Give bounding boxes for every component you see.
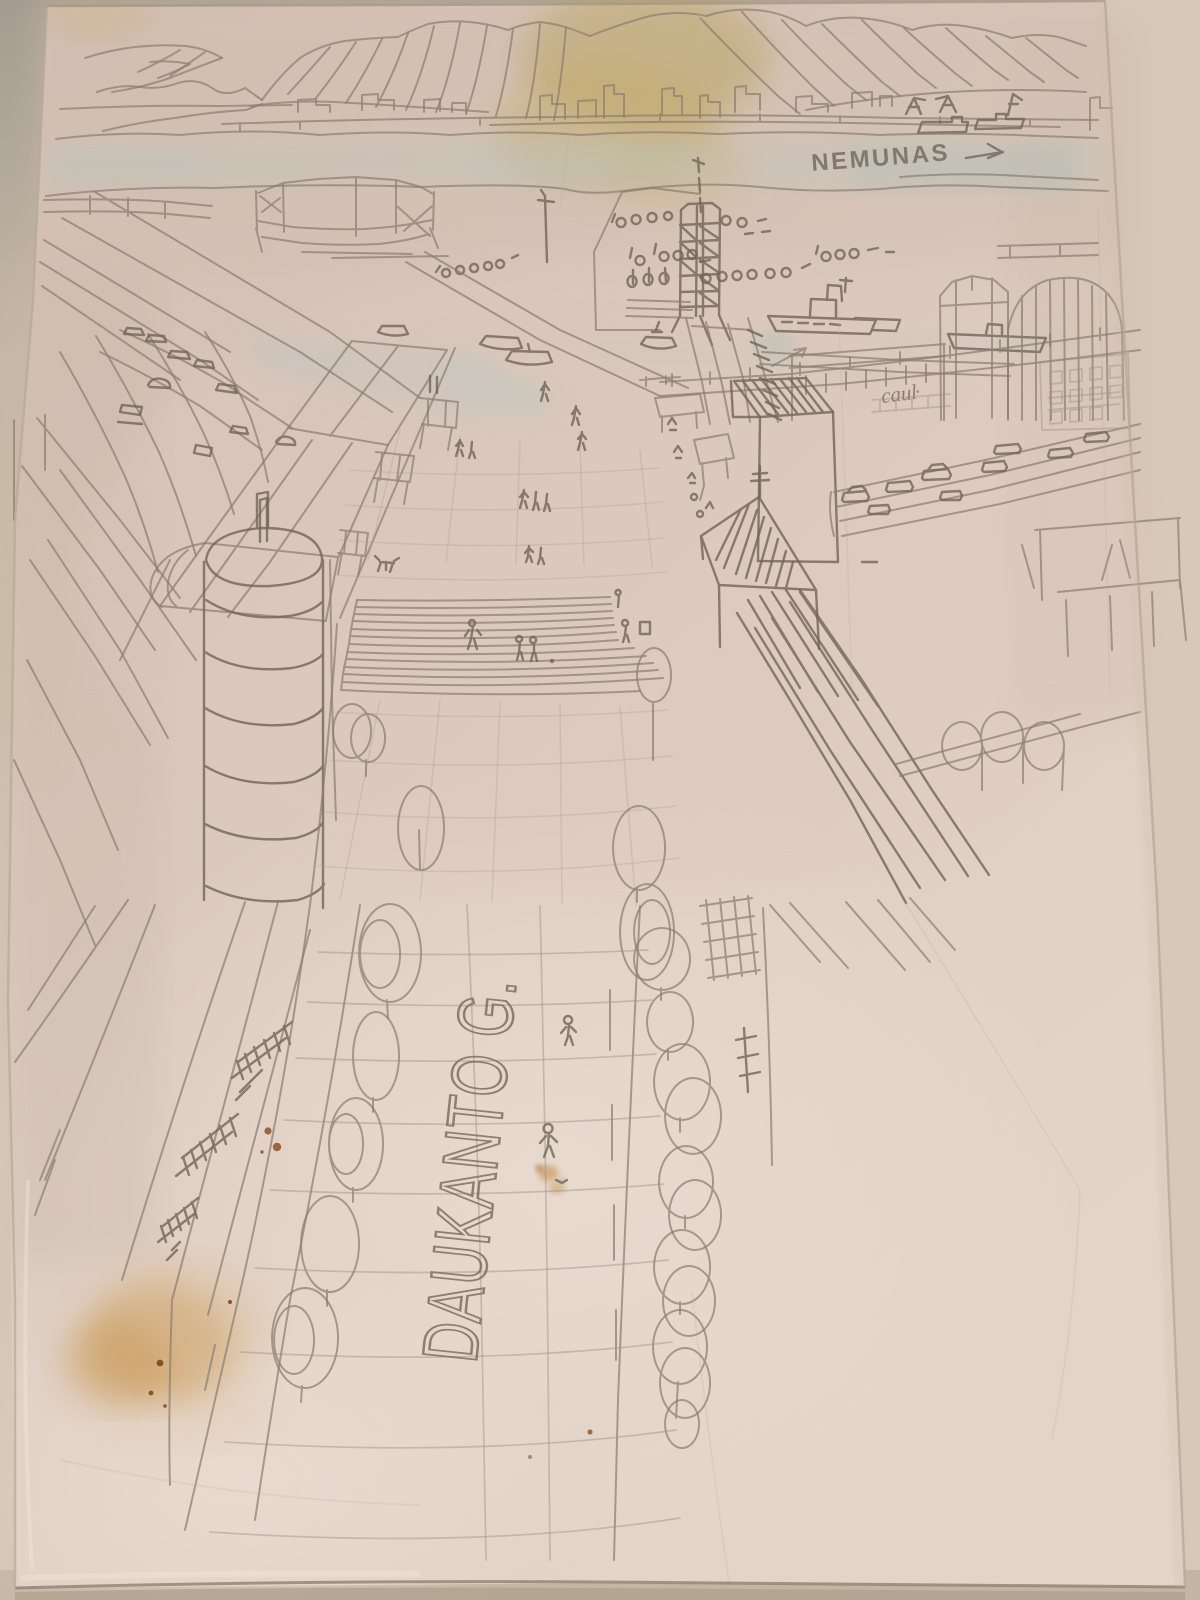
svg-text:cauŀ: cauŀ	[880, 379, 921, 407]
